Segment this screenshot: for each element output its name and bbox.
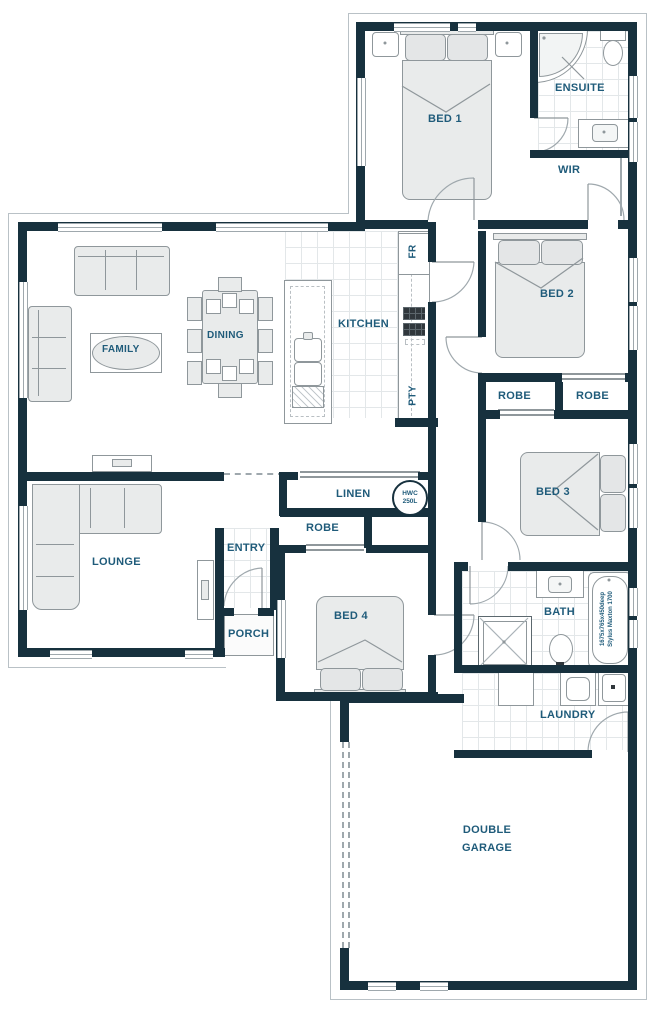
wall bbox=[356, 220, 428, 229]
wall bbox=[428, 655, 436, 693]
room-label-lounge: LOUNGE bbox=[92, 556, 141, 568]
window bbox=[629, 620, 638, 648]
window bbox=[629, 122, 638, 162]
door-arc bbox=[428, 178, 474, 220]
wall bbox=[618, 220, 637, 229]
door-arc bbox=[446, 337, 482, 373]
door-arc bbox=[470, 566, 508, 604]
window bbox=[629, 488, 638, 528]
window bbox=[629, 76, 638, 118]
window bbox=[19, 506, 28, 610]
room-label-wir: WIR bbox=[558, 164, 580, 176]
door-arc bbox=[432, 262, 474, 302]
wall bbox=[554, 410, 637, 419]
window bbox=[357, 78, 366, 166]
room-label-garage-line1: DOUBLE bbox=[427, 824, 547, 836]
wall bbox=[418, 472, 428, 480]
wall bbox=[428, 302, 436, 418]
bathtub-spec-line1: 1675x765x450deep bbox=[600, 575, 608, 663]
door-arc bbox=[224, 568, 262, 606]
door-arc bbox=[588, 184, 624, 220]
wall bbox=[364, 517, 372, 548]
wall bbox=[18, 472, 224, 481]
window bbox=[629, 444, 638, 484]
window bbox=[458, 23, 476, 32]
wall bbox=[478, 419, 486, 522]
wall bbox=[628, 671, 637, 990]
window bbox=[58, 223, 162, 232]
hwc-cylinder: HWC 250L bbox=[392, 480, 428, 516]
wall bbox=[258, 608, 274, 616]
bed1-fold bbox=[402, 84, 490, 112]
wall bbox=[454, 665, 637, 673]
wall bbox=[428, 222, 436, 262]
room-label-garage-line2: GARAGE bbox=[427, 842, 547, 854]
wall bbox=[555, 382, 563, 412]
room-label-bed1: BED 1 bbox=[428, 113, 462, 125]
wall bbox=[340, 694, 349, 742]
wall bbox=[530, 150, 637, 158]
hwc-label-line1: HWC bbox=[402, 490, 418, 498]
window bbox=[629, 258, 638, 302]
room-label-bath: BATH bbox=[544, 606, 575, 618]
wall bbox=[625, 373, 637, 382]
wall bbox=[478, 220, 588, 229]
room-label-bed3: BED 3 bbox=[536, 486, 570, 498]
room-label-robe-bed3: ROBE bbox=[498, 390, 531, 402]
wall bbox=[508, 562, 637, 571]
window bbox=[216, 223, 328, 232]
window bbox=[185, 650, 213, 659]
room-label-linen: LINEN bbox=[336, 488, 371, 500]
bathtub-spec-line2: Stylus Maxton 1700 bbox=[608, 575, 616, 663]
wall bbox=[454, 571, 462, 665]
hwc-label-line2: 250L bbox=[403, 498, 418, 506]
window bbox=[629, 588, 638, 616]
room-label-kitchen: KITCHEN bbox=[338, 318, 389, 330]
room-label-fridge: FR bbox=[408, 243, 419, 261]
wall bbox=[478, 231, 486, 337]
room-label-laundry: LAUNDRY bbox=[540, 709, 595, 721]
door-arc bbox=[534, 118, 568, 152]
room-label-robe-bed2: ROBE bbox=[576, 390, 609, 402]
wall bbox=[340, 694, 464, 703]
wall bbox=[478, 410, 500, 419]
room-label-family: FAMILY bbox=[102, 344, 140, 355]
room-label-entry: ENTRY bbox=[227, 542, 265, 554]
room-label-pantry: PTY bbox=[408, 384, 419, 408]
floor-plan: FAMILY DINING FR PTY KITCHEN BED 2 ROBE … bbox=[0, 0, 654, 1024]
bed4-fold bbox=[318, 640, 402, 662]
window bbox=[629, 306, 638, 350]
wall bbox=[395, 418, 438, 427]
wall bbox=[478, 373, 562, 382]
window bbox=[19, 282, 28, 398]
wall bbox=[222, 608, 234, 616]
room-label-dining: DINING bbox=[207, 330, 244, 341]
room-label-bed2: BED 2 bbox=[540, 288, 574, 300]
room-label-robe-bed4: ROBE bbox=[306, 522, 339, 534]
wall bbox=[366, 545, 428, 553]
bathtub-spec-text: 1675x765x450deep Stylus Maxton 1700 bbox=[600, 575, 618, 663]
door-arc bbox=[482, 522, 520, 560]
wall bbox=[428, 427, 436, 615]
window bbox=[368, 982, 396, 991]
window bbox=[277, 600, 286, 658]
wall bbox=[530, 31, 538, 118]
room-label-bed4: BED 4 bbox=[334, 610, 368, 622]
room-label-ensuite: ENSUITE bbox=[555, 82, 605, 94]
window bbox=[394, 23, 450, 32]
wall bbox=[454, 562, 468, 571]
wall bbox=[215, 528, 224, 657]
bed2-fold bbox=[495, 258, 583, 288]
window bbox=[50, 650, 92, 659]
window bbox=[420, 982, 448, 991]
wall bbox=[454, 750, 592, 758]
room-label-porch: PORCH bbox=[228, 628, 269, 640]
